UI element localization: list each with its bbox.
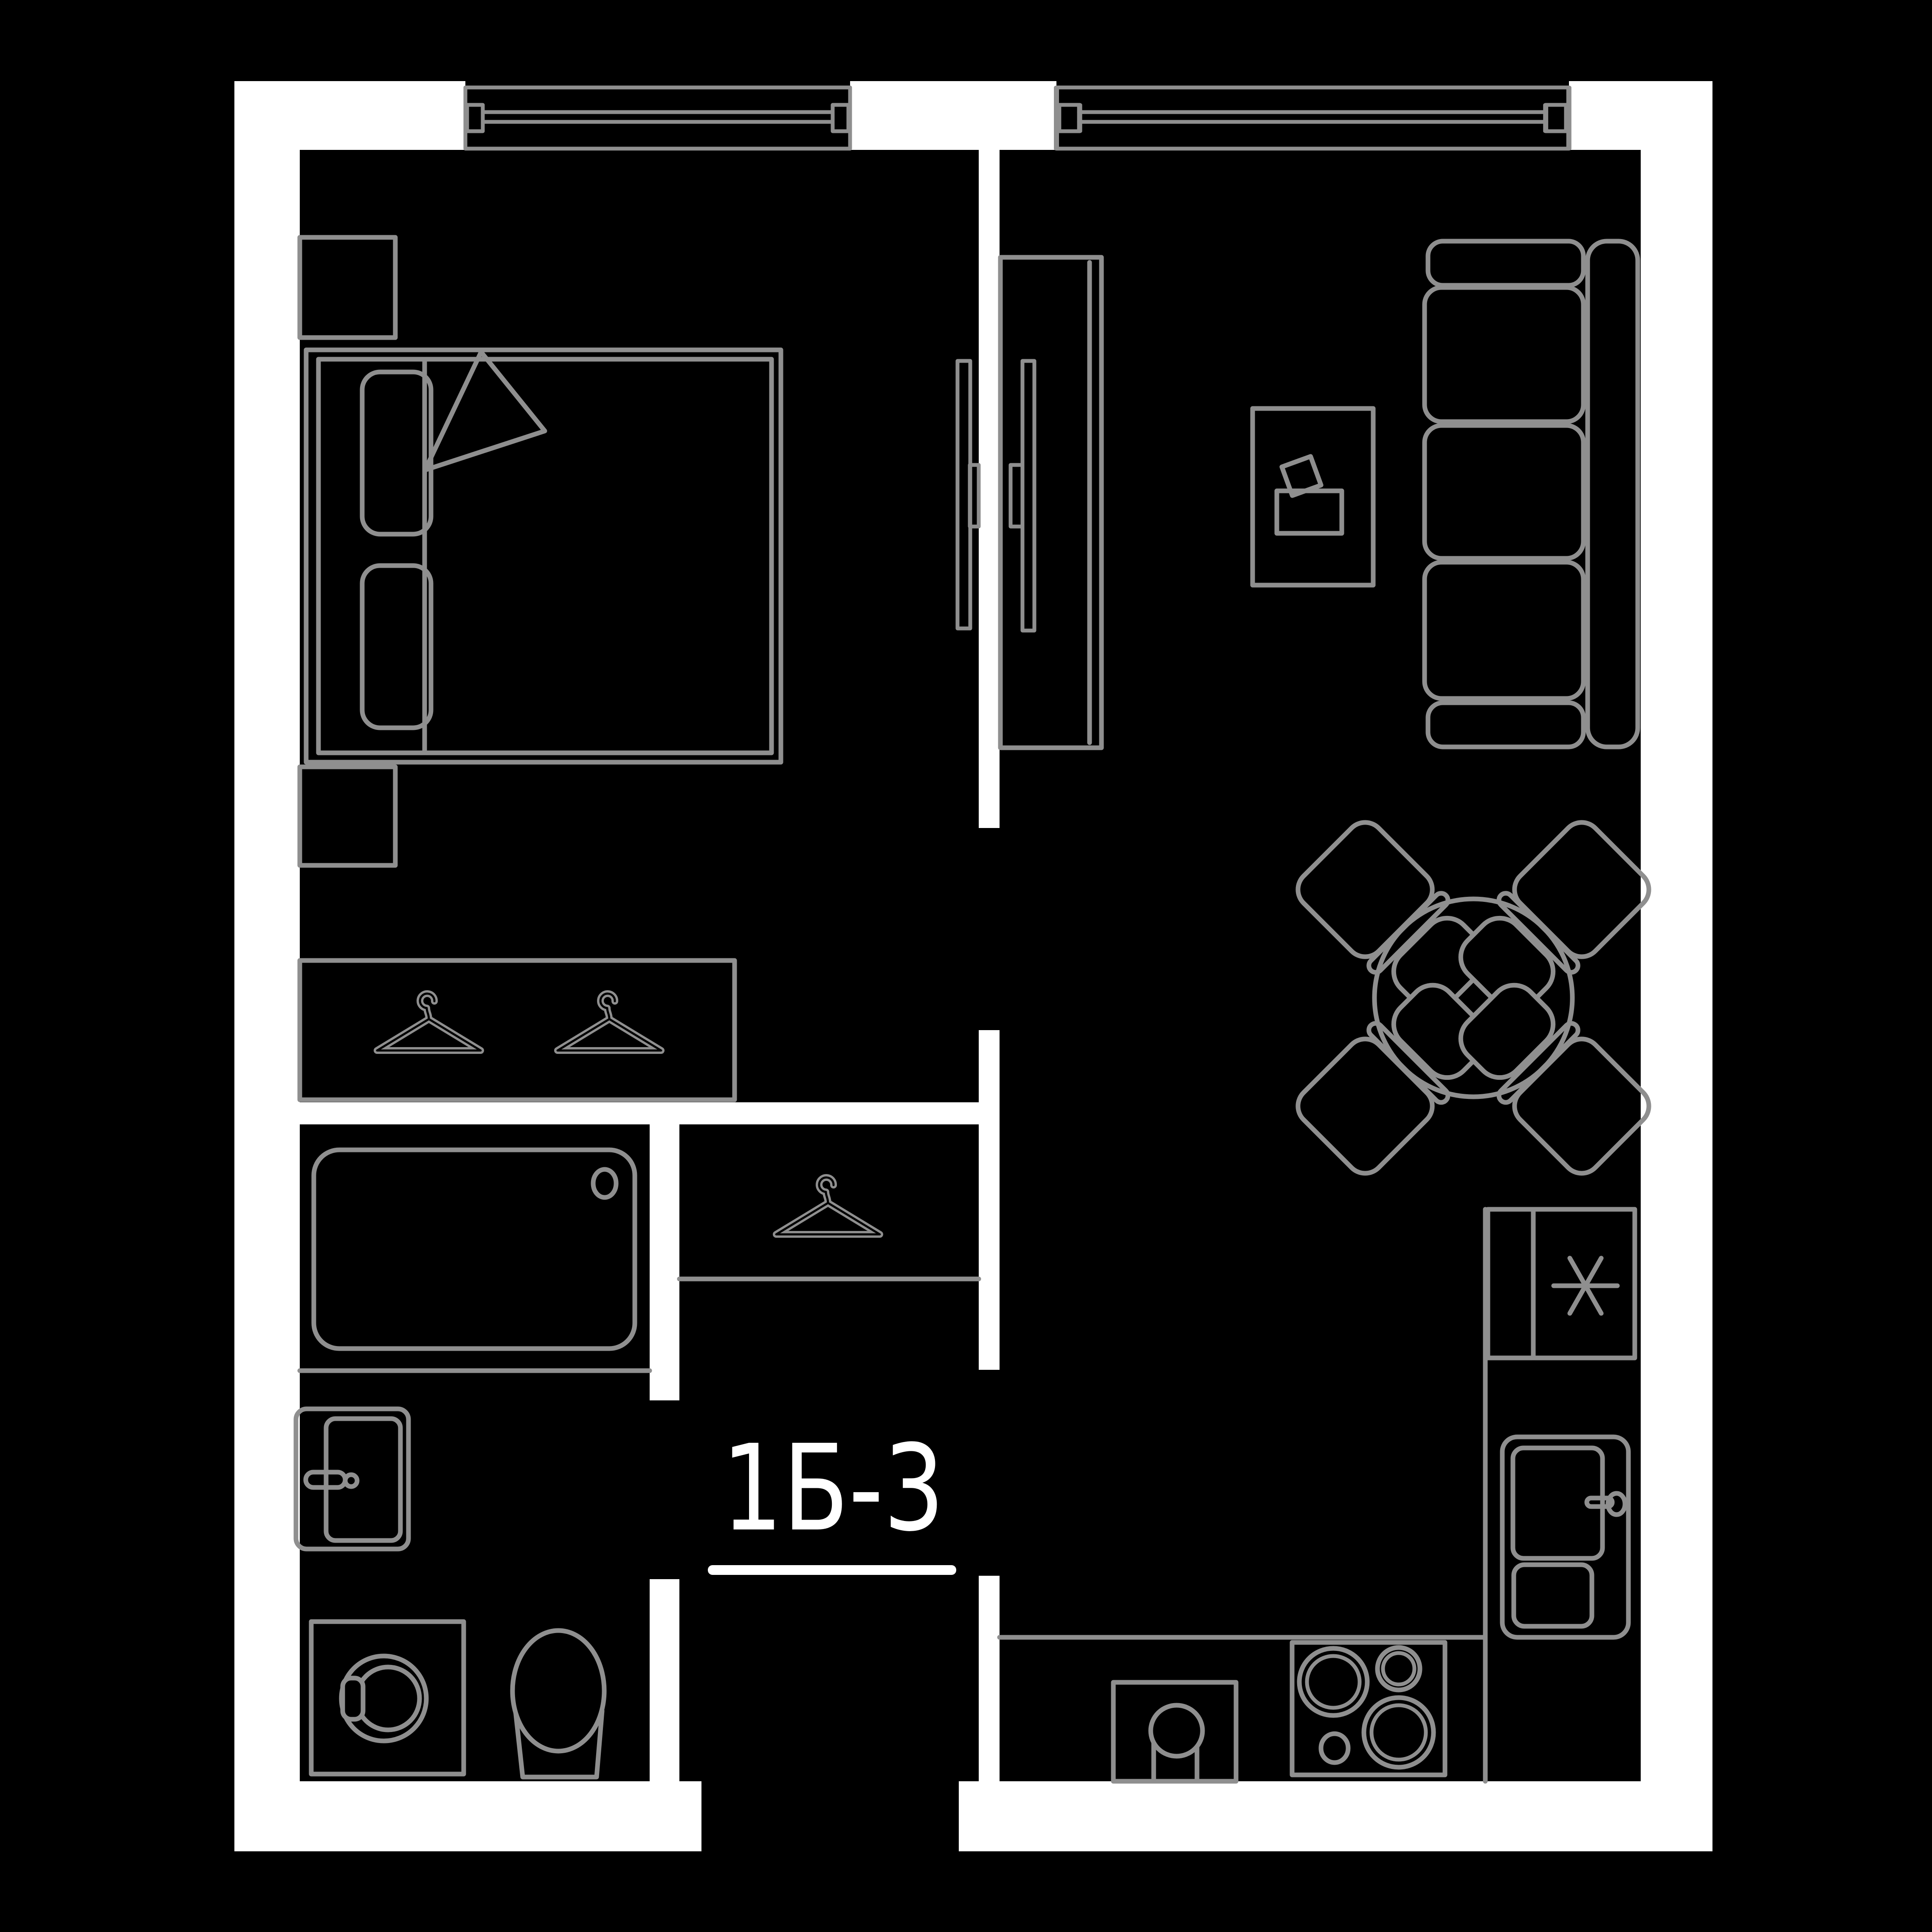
- wall-left: [234, 81, 300, 1851]
- apartment-label: 1Б-3: [722, 1419, 945, 1558]
- apartment-label-underline: [708, 1565, 956, 1575]
- wall-top-b: [850, 81, 1056, 150]
- wall-top-c: [1569, 81, 1712, 150]
- wall-bath-right-lower: [650, 1579, 679, 1781]
- wall-bottom-left: [234, 1781, 701, 1851]
- wall-bath-right-upper: [650, 1124, 679, 1400]
- wall-top-a: [234, 81, 465, 150]
- wall-bedroom-bath-strip: [300, 1102, 979, 1124]
- wall-right: [1641, 150, 1712, 1851]
- wall-partition-upper: [979, 150, 1000, 828]
- wall-bottom-right: [959, 1781, 1712, 1851]
- wall-partition-lower: [979, 1576, 1000, 1781]
- floor-plan-svg: 1Б-3: [0, 0, 1932, 1932]
- washer-door-hinge: [343, 1678, 363, 1719]
- toilet-bowl: [513, 1631, 604, 1751]
- floor-plan: 1Б-3: [0, 0, 1932, 1932]
- wall-partition-middle: [979, 1030, 1000, 1370]
- basin: [1151, 1705, 1203, 1756]
